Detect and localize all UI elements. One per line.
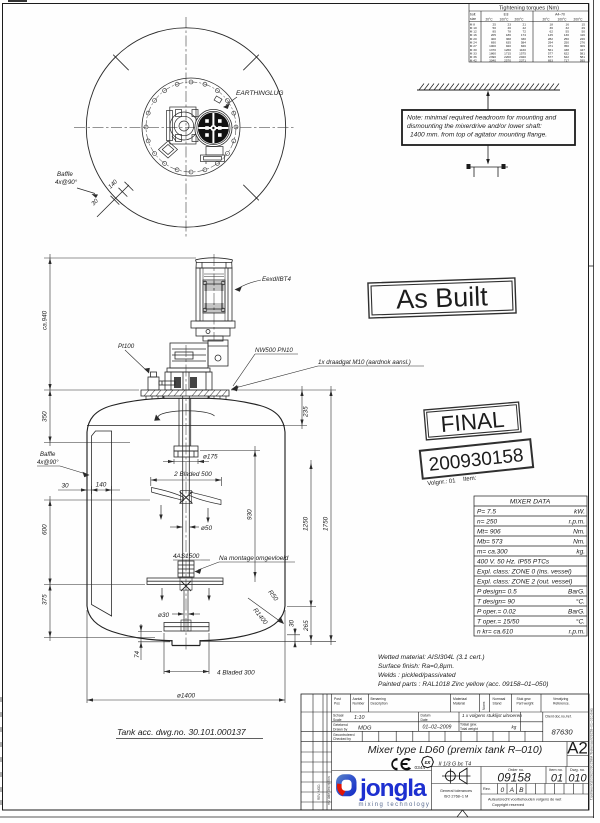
svg-text:200°C: 200°C [515,18,525,22]
svg-text:REV. MOD.: REV. MOD. [317,784,321,800]
svg-text:°C.: °C. [576,618,585,626]
svg-text:Part weight: Part weight [517,702,534,706]
svg-text:595: 595 [580,59,585,63]
svg-text:Scale: Scale [333,718,342,722]
svg-text:P oper.= 0.02: P oper.= 0.02 [477,609,516,616]
svg-text:ø1400: ø1400 [177,693,196,700]
svg-text:P design= 0.5: P design= 0.5 [477,589,517,596]
svg-text:100°C: 100°C [558,18,568,22]
svg-text:100°C: 100°C [500,18,510,22]
svg-text:M 42: M 42 [470,59,477,63]
svg-text:Benaming: Benaming [371,697,386,701]
svg-text:200°C: 200°C [574,18,584,22]
svg-text:jongla: jongla [359,775,427,802]
svg-text:m= ca.300: m= ca.300 [477,549,508,556]
svg-text:B: B [519,787,524,794]
svg-text:Pt100: Pt100 [118,343,135,350]
svg-text:20°C: 20°C [542,18,550,22]
svg-text:Welds : pickled/passivated: Welds : pickled/passivated [378,672,456,679]
svg-text:ISO 2768–1 M: ISO 2768–1 M [444,795,468,799]
svg-text:Reference.: Reference. [553,702,570,706]
svg-text:Material: Material [453,702,465,706]
svg-text:235: 235 [303,406,310,418]
svg-text:Aantal: Aantal [353,697,363,701]
svg-text:A2: A2 [567,739,588,758]
svg-text:265: 265 [303,620,310,632]
svg-text:NW500 PN10: NW500 PN10 [255,347,293,354]
svg-text:1250: 1250 [303,516,310,531]
svg-text:010: 010 [568,773,587,785]
svg-text:Painted parts : RAL1018 Zinc: Painted parts : RAL1018 Zinc yellow (acc… [378,681,548,688]
svg-text:Item no.: Item no. [549,768,563,772]
svg-text:Nm.: Nm. [573,529,585,536]
svg-text:Client doc.no./ref.: Client doc.no./ref. [545,715,572,719]
svg-text:Norm: Norm [482,702,486,710]
svg-text:1:10: 1:10 [354,715,365,721]
svg-text:EexdIIBT4: EexdIIBT4 [262,276,291,283]
svg-text:Baffle: Baffle [40,452,56,458]
svg-text:°C.: °C. [576,598,585,606]
svg-text:4 Bladed 300: 4 Bladed 300 [217,670,255,677]
svg-text:General tolerances: General tolerances [440,789,472,793]
svg-text:Materiaal: Materiaal [453,697,467,701]
svg-text:Verwijzing: Verwijzing [553,697,568,701]
svg-text:Stuk gew.: Stuk gew. [517,697,532,701]
svg-text:Nm.: Nm. [573,539,585,546]
svg-text:Mixer type LD60 (premix tank R: Mixer type LD60 (premix tank R–010) [368,744,543,756]
svg-text:1x draadgat M10 (aardnok aansl: 1x draadgat M10 (aardnok aansl.) [318,359,411,366]
svg-text:ø30: ø30 [158,612,169,619]
svg-text:kg: kg [512,725,517,730]
svg-text:Na montage omgevloeid: Na montage omgevloeid [219,555,289,562]
svg-text:Rev.: Rev. [483,787,491,791]
svg-text:2570: 2570 [504,59,511,63]
svg-text:rev. date description: rev. date description [327,776,331,805]
svg-text:Note: minimal required headro: Note: minimal required headroom for moun… [407,115,557,122]
svg-text:Date: Date [421,718,428,722]
svg-text:Tightening torques (Nm): Tightening torques (Nm) [499,6,559,12]
svg-text:3040: 3040 [489,59,496,63]
svg-text:FINAL: FINAL [440,407,506,437]
svg-text:8.8: 8.8 [504,13,509,17]
svg-text:f:\pdmwork\2009\20090158\A Te: f:\pdmwork\2009\20090158\A Teekenaar\091… [590,708,594,800]
svg-text:0: 0 [500,787,504,794]
svg-text:EARTHINGLUG: EARTHINGLUG [236,90,284,97]
svg-text:Normaal: Normaal [493,697,506,701]
svg-text:Total weight: Total weight [460,727,478,731]
svg-text:Expl. class: ZONE 0 (ins. vess: Expl. class: ZONE 0 (ins. vessel) [477,569,572,576]
svg-text:01: 01 [551,773,563,785]
svg-text:717: 717 [564,59,569,63]
svg-text:Tank acc. dwg.no. 30.101.00: Tank acc. dwg.no. 30.101.000137 [117,727,247,737]
svg-text:Description: Description [371,702,388,706]
svg-text:r.p.m.: r.p.m. [569,629,586,636]
svg-text:kg.: kg. [576,549,585,556]
svg-text:P= 7.5: P= 7.5 [477,509,496,516]
svg-text:Mb= 573: Mb= 573 [477,539,503,546]
svg-text:T design= 90: T design= 90 [477,599,515,606]
svg-text:2371: 2371 [519,59,526,63]
svg-text:dismounting the mixerdrive an: dismounting the mixerdrive and/or lower … [407,123,542,130]
svg-text:Pos: Pos [334,702,340,706]
svg-text:Baffle: Baffle [57,171,73,178]
svg-text:MIXER DATA: MIXER DATA [510,499,551,506]
svg-text:74: 74 [134,650,141,658]
svg-text:n= 250: n= 250 [477,519,497,526]
svg-text:r.p.m.: r.p.m. [569,519,586,526]
svg-text:Auteursrecht voorbehouden volg: Auteursrecht voorbehouden volgens de wet [488,798,562,802]
svg-text:01–02–2009: 01–02–2009 [423,725,452,731]
svg-text:A4–70: A4–70 [555,13,565,17]
svg-text:2 Bladed 500: 2 Bladed 500 [173,471,212,478]
svg-text:1 x volgens stuklijst uitvo: 1 x volgens stuklijst uitvoeren [462,713,522,718]
svg-text:ø175: ø175 [203,454,218,461]
svg-text:BarG.: BarG. [568,589,585,596]
svg-text:Number: Number [353,702,366,706]
svg-text:Mt= 906: Mt= 906 [477,529,501,536]
svg-text:T oper.= 15/50: T oper.= 15/50 [477,619,520,626]
svg-text:n kr= ca.610: n kr= ca.610 [477,629,513,636]
svg-text:400 V. 50 Hz. IP55 PTCs: 400 V. 50 Hz. IP55 PTCs [477,559,550,566]
svg-text:1400 mm. from top of agitator: 1400 mm. from top of agitator mounting f… [410,132,547,139]
svg-text:Drawn by: Drawn by [333,727,348,731]
svg-text:εx: εx [425,760,432,766]
svg-text:4AS1500: 4AS1500 [173,553,200,560]
svg-text:Copyright reserved: Copyright reserved [492,803,524,807]
svg-text:A: A [509,787,515,794]
svg-text:Surface finish: Ra=0,8µm.: Surface finish: Ra=0,8µm. [378,663,454,670]
svg-text:930: 930 [247,509,254,520]
svg-text:II 1/3 G bc T4: II 1/3 G bc T4 [439,762,472,768]
svg-text:ø50: ø50 [201,525,212,532]
svg-text:350: 350 [42,411,49,422]
svg-text:Wetted material: AISI304L (3: Wetted material: AISI304L (3.1 cert.) [378,654,485,661]
svg-text:600: 600 [42,524,49,535]
svg-text:20°C: 20°C [485,18,493,22]
svg-text:bolt: bolt [470,13,476,17]
svg-text:30: 30 [289,619,296,627]
svg-text:As Built: As Built [396,281,489,314]
svg-text:4x@90°: 4x@90° [55,179,78,186]
svg-text:4x@90°: 4x@90° [37,460,59,466]
svg-text:ca.940: ca.940 [42,310,49,330]
svg-text:87630: 87630 [552,728,574,737]
svg-text:30: 30 [61,483,69,490]
svg-text:1750: 1750 [323,516,330,531]
svg-text:Expl. class: ZONE 2 (out. vess: Expl. class: ZONE 2 (out. vessel) [477,579,572,586]
svg-text:kW.: kW. [574,509,585,516]
svg-text:Stand: Stand [493,702,502,706]
svg-text:Dwg. no.: Dwg. no. [570,768,585,772]
svg-text:375: 375 [42,594,49,605]
svg-text:09158: 09158 [497,771,531,785]
svg-text:MDG: MDG [358,726,372,732]
svg-text:BarG.: BarG. [568,609,585,616]
svg-text:Checked by: Checked by [333,737,351,741]
svg-text:mixing technology: mixing technology [359,802,431,808]
svg-text:140: 140 [96,482,107,489]
svg-text:size: size [470,17,476,21]
svg-text:Post: Post [334,697,341,701]
svg-text:693: 693 [548,59,553,63]
